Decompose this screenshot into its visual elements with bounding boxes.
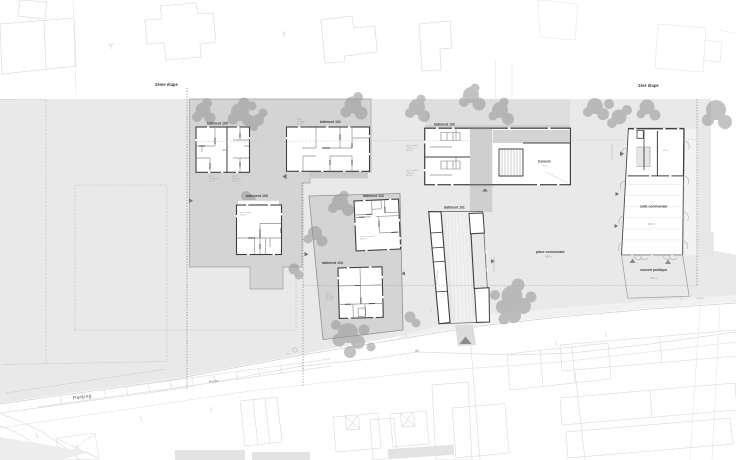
svg-text:bâtiment 100: bâtiment 100 [434,122,455,126]
svg-text:tearoom: tearoom [538,160,551,164]
svg-text:bâtiment 105: bâtiment 105 [207,122,228,126]
svg-text:de: de [415,348,420,353]
svg-text:bâtiment 106: bâtiment 106 [246,194,268,198]
svg-text:95 m²: 95 m² [542,165,548,168]
svg-text:couvert publique: couvert publique [640,268,667,272]
svg-text:bâtiment 104: bâtiment 104 [322,261,343,265]
svg-text:accès préscolaire: accès préscolaire [494,256,496,272]
svg-text:320 m²: 320 m² [648,223,656,226]
svg-text:place communale: place communale [536,250,565,254]
svg-text:1ère étape: 1ère étape [638,83,659,88]
svg-text:bâtiment 103: bâtiment 103 [363,194,384,198]
svg-text:salle communale: salle communale [640,205,667,209]
svg-text:bâtiment 102: bâtiment 102 [320,120,341,124]
svg-text:90 m²: 90 m² [663,149,669,152]
svg-text:bâtiment 101: bâtiment 101 [444,205,465,209]
svg-text:2ème étape: 2ème étape [155,82,178,87]
svg-text:240 m²: 240 m² [545,256,553,259]
svg-text:accueil préscolaire: accueil préscolaire [612,143,614,160]
svg-text:150 m²: 150 m² [650,277,658,280]
svg-text:451.15: 451.15 [697,298,704,300]
